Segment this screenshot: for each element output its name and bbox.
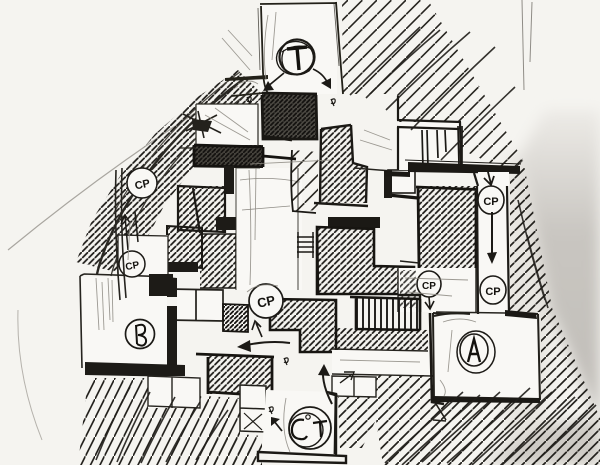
svg-text:CP: CP [485,286,500,298]
svg-text:CP: CP [422,281,436,292]
svg-text:CP: CP [483,196,498,208]
